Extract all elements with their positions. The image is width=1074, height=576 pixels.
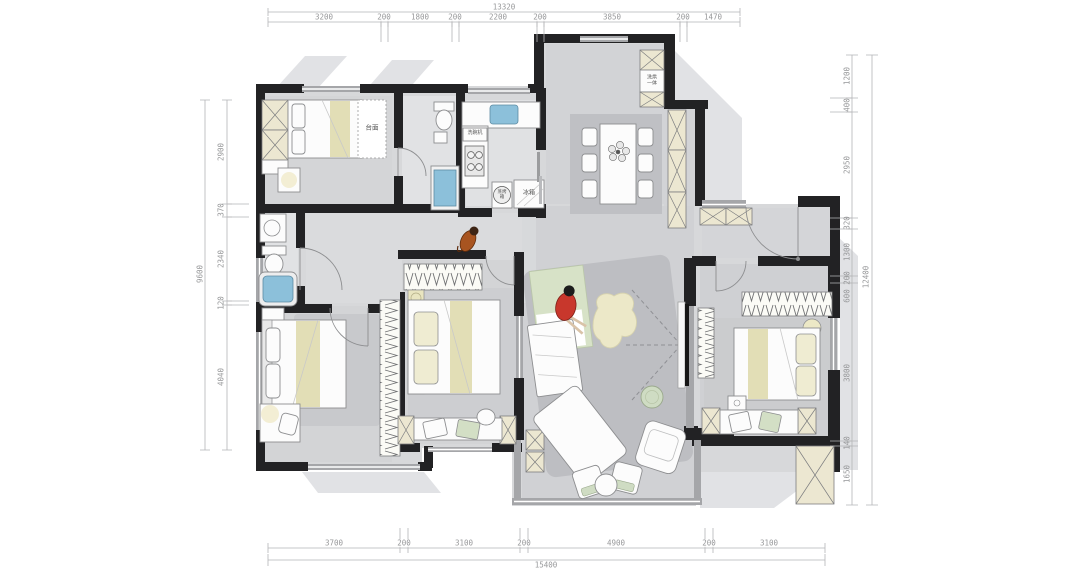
dimension-label: 200: [396, 539, 412, 547]
right-bedroom-headboard-wardrobe: [742, 292, 832, 316]
round-stool: [477, 409, 495, 425]
daybed: [527, 319, 583, 397]
floor-plan-drawing: [0, 0, 1074, 576]
dining-area: [582, 124, 653, 204]
middle-bedroom-headboard-wardrobe: [404, 264, 482, 290]
dimension-label: 200: [843, 270, 851, 286]
pillow: [292, 104, 305, 128]
washer-dryer-label: 洗烘一体: [646, 75, 658, 87]
countertop-label: 台面: [359, 124, 385, 131]
dimension-label: 200: [516, 539, 532, 547]
dimension-label: 200: [376, 13, 392, 21]
pillow: [414, 312, 438, 346]
dimension-total: 12400: [862, 265, 870, 290]
dining-table: [600, 124, 636, 204]
toilet: [436, 110, 452, 130]
dimension-label: 4040: [217, 367, 225, 387]
pillow: [796, 366, 816, 396]
side-table: [641, 386, 663, 408]
dimension-label: 140: [843, 435, 851, 451]
dimension-label: 2900: [217, 142, 225, 162]
tv: [685, 304, 689, 386]
dimension-label: 3100: [759, 539, 779, 547]
toilet: [265, 254, 283, 274]
kitchen-sink: [490, 105, 518, 124]
dimension-label: 400: [843, 97, 851, 113]
dimension-label: 3800: [843, 363, 851, 383]
dimension-label: 200: [701, 539, 717, 547]
floor-plan-page: 3200 200 1800 200 2200 200 3850 200 1470…: [0, 0, 1074, 576]
dimension-label: 3700: [324, 539, 344, 547]
right-bedroom-side-wardrobe: [698, 308, 714, 378]
cushion: [456, 419, 481, 440]
dimension-label: 1300: [843, 242, 851, 262]
chair: [638, 128, 653, 146]
dimension-label: 200: [447, 13, 463, 21]
pillow: [266, 328, 280, 362]
master-wardrobe: [380, 300, 400, 456]
dishwasher-label: 洗碗机: [464, 131, 486, 137]
dimension-label: 3200: [314, 13, 334, 21]
dimension-label: 1800: [410, 13, 430, 21]
stove: [465, 146, 484, 176]
dimension-total: 13320: [492, 3, 517, 11]
pillow: [414, 350, 438, 384]
cushion: [758, 411, 781, 433]
pillow: [292, 130, 305, 154]
dimension-total: 9600: [196, 264, 204, 284]
dimension-label: 3850: [602, 13, 622, 21]
dimension-label: 4900: [606, 539, 626, 547]
cushion: [728, 411, 751, 433]
chair: [638, 180, 653, 198]
dimension-label: 1650: [843, 464, 851, 484]
dimension-label: 320: [843, 215, 851, 231]
dimension-label: 600: [843, 288, 851, 304]
dimension-label: 3100: [454, 539, 474, 547]
dimension-label: 1470: [703, 13, 723, 21]
chair: [638, 154, 653, 172]
chair: [582, 180, 597, 198]
dimension-label: 2340: [217, 249, 225, 269]
bay-round-table: [595, 474, 617, 496]
chair: [582, 154, 597, 172]
dimension-label: 120: [217, 295, 225, 311]
dimension-label: 370: [217, 202, 225, 218]
nightstand: [728, 396, 746, 410]
dimension-label: 2200: [488, 13, 508, 21]
fridge-label: 冰箱: [516, 191, 542, 198]
dimension-label: 1200: [843, 66, 851, 86]
pillow: [266, 364, 280, 398]
pillow: [796, 334, 816, 364]
steam-oven-label: 蒸烤箱: [497, 190, 508, 200]
dimension-label: 200: [532, 13, 548, 21]
dimension-label: 2950: [843, 155, 851, 175]
dimension-total: 15400: [534, 561, 559, 569]
small-sink: [434, 132, 447, 143]
dimension-label: 200: [675, 13, 691, 21]
chair: [582, 128, 597, 146]
projection-screen: [678, 302, 685, 388]
